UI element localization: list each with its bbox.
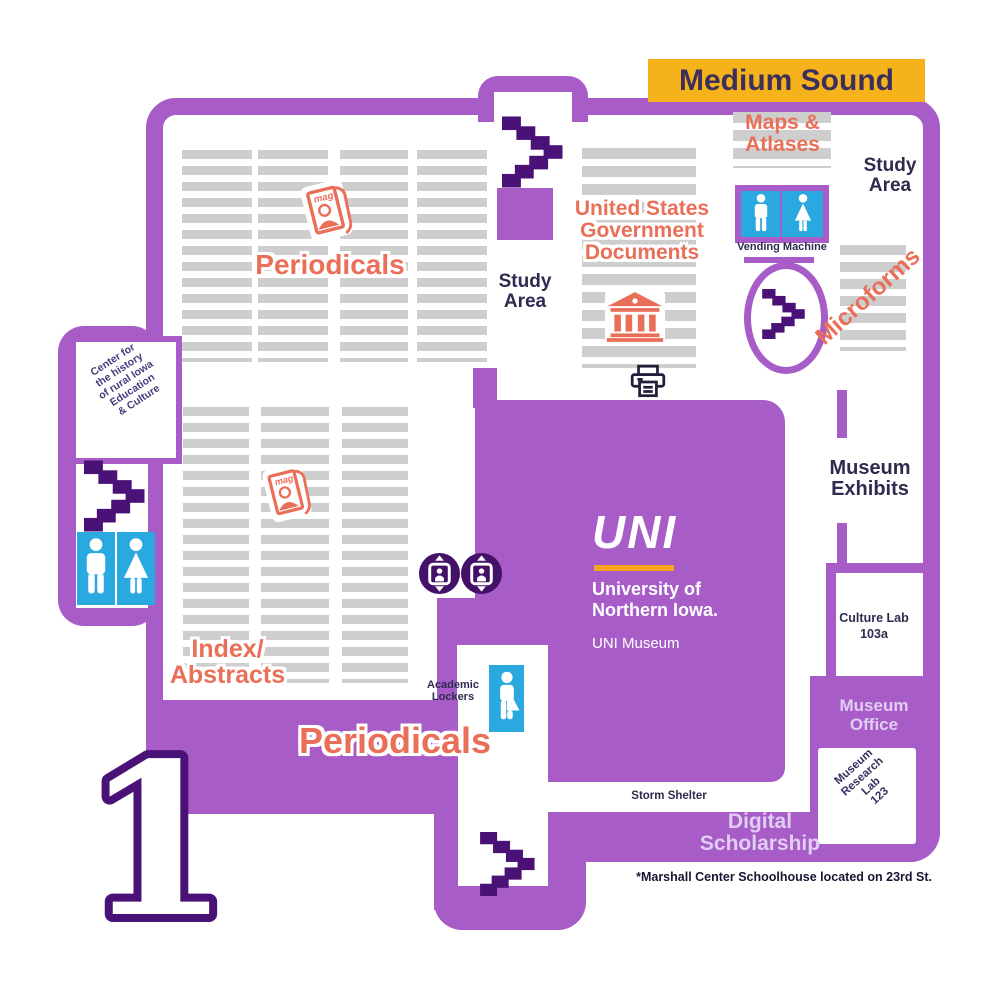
medium-sound-label: Medium Sound — [679, 64, 894, 98]
stairs-icon-left — [84, 452, 146, 540]
elevator-icon-left — [418, 552, 461, 595]
floor-number: 1 — [72, 742, 242, 927]
storm-shelter-label: Storm Shelter — [610, 790, 728, 802]
restroom-unisex-icon — [489, 668, 524, 728]
medium-sound-banner: Medium Sound — [648, 59, 925, 102]
uni-logo-wordmark: UNI — [592, 505, 718, 559]
study-area-right-label: StudyArea — [840, 156, 940, 196]
stairs-icon-bottom — [479, 832, 537, 896]
uni-museum-logo: UNI University of Northern Iowa. UNI Mus… — [592, 505, 718, 652]
restroom-women-left — [117, 532, 155, 605]
uni-logo-underline — [594, 565, 674, 571]
index-abstracts-label: Index/Abstracts — [160, 636, 295, 689]
magazine-icon-lower: mag — [258, 462, 322, 526]
bottom-stairwell-right-wall — [548, 858, 586, 904]
study-area-center-label: StudyArea — [480, 272, 570, 312]
culture-lab-label: Culture Lab103a — [830, 611, 918, 642]
periodicals-bottom-label: Periodicals — [280, 722, 510, 760]
uni-logo-line2: Northern Iowa. — [592, 600, 718, 621]
stairs-icon-top — [502, 114, 564, 190]
restroom-men-icon — [741, 193, 780, 235]
museum-exhibits-wall-upper — [837, 390, 847, 438]
digital-scholarship-label: DigitalScholarship — [645, 811, 875, 855]
academic-lockers-label: AcademicLockers — [419, 680, 487, 703]
center-history-room: Center for the history of rural Iowa Edu… — [70, 336, 182, 464]
printer-icon — [628, 364, 668, 400]
restroom-men-left — [77, 532, 115, 605]
center-history-label: Center for the history of rural Iowa Edu… — [63, 324, 190, 436]
restroom-men-cell — [741, 191, 780, 237]
museum-exhibits-label: MuseumExhibits — [814, 458, 926, 500]
restroom-women-icon — [782, 193, 823, 235]
us-gov-docs-label: United StatesGovernmentDocuments — [558, 198, 726, 264]
government-building-icon — [604, 288, 666, 345]
footnote: *Marshall Center Schoolhouse located on … — [600, 870, 932, 884]
maps-atlases-label: Maps &Atlases — [725, 112, 840, 156]
uni-museum-caption: UNI Museum — [592, 635, 718, 652]
museum-office-label: MuseumOffice — [822, 697, 926, 734]
bookshelf-index-col3 — [342, 407, 408, 683]
periodicals-top-label: Periodicals — [230, 250, 430, 279]
uni-logo-line1: University of — [592, 579, 718, 600]
magazine-icon-top: mag — [296, 178, 364, 246]
floor-plan-page: { "banner": { "label": "Medium Sound" },… — [0, 0, 1000, 1000]
vending-machine-label: Vending Machine — [728, 242, 836, 254]
svg-text:1: 1 — [84, 742, 230, 927]
restroom-women-cell — [782, 191, 823, 237]
restroom-men-icon — [77, 535, 115, 601]
culture-lab-wall-top — [826, 563, 932, 573]
culture-lab-wall-bottom — [826, 685, 932, 695]
restroom-women-icon — [117, 535, 155, 601]
stairs-icon-spiral — [762, 289, 806, 339]
study-area-marker-square — [497, 188, 553, 240]
elevator-icon-right — [460, 552, 503, 595]
spiral-stair-oval — [744, 262, 828, 374]
